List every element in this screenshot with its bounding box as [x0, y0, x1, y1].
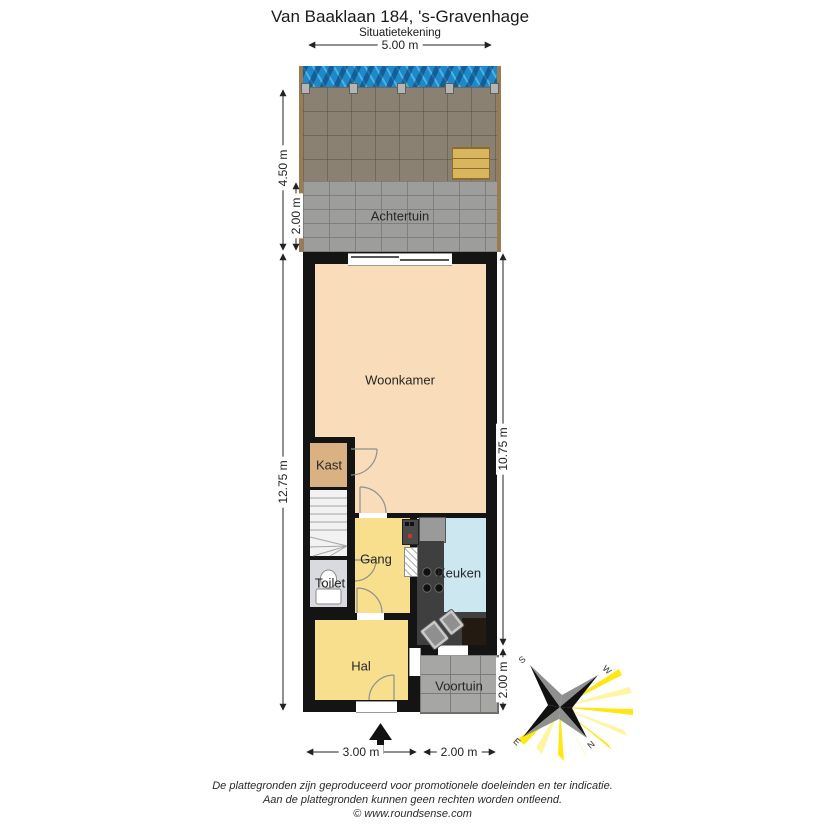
- compass-letters: S W N E: [511, 654, 613, 751]
- heater-unit: [402, 519, 419, 545]
- label-achtertuin: Achtertuin: [371, 209, 430, 224]
- disclaimer-line-2: Aan de plattegronden kunnen geen rechten…: [0, 794, 825, 806]
- opening-gang-hal: [357, 613, 384, 620]
- label-hal: Hal: [351, 659, 371, 674]
- staircase: [310, 490, 347, 556]
- fence-post: [397, 83, 406, 94]
- compass-s: S: [517, 654, 528, 666]
- opening-woonkamer-gang: [359, 513, 387, 518]
- copyright: © www.roundsense.com: [0, 808, 825, 820]
- fence-post: [301, 83, 310, 94]
- compass-e: E: [511, 736, 522, 747]
- compass-star: [523, 665, 598, 738]
- page-title: Van Baaklaan 184, 's-Gravenhage: [0, 7, 800, 27]
- front-door-threshold: [356, 701, 397, 713]
- floorplan-page: Van Baaklaan 184, 's-Gravenhage Situatie…: [0, 0, 825, 825]
- label-voortuin: Voortuin: [435, 679, 483, 694]
- compass-rose-icon: S W N E: [503, 648, 633, 763]
- sun-rays: [518, 669, 633, 761]
- label-toilet: Toilet: [315, 576, 345, 591]
- glass-door-keuken: [404, 547, 418, 577]
- fence-post: [349, 83, 358, 94]
- dim-voortuin-bottom: 2.00 m: [437, 745, 482, 759]
- dim-voortuin-right: 2.00 m: [496, 658, 510, 703]
- hal-window: [409, 648, 421, 676]
- dim-garden-lower: 2.00 m: [289, 194, 303, 239]
- keuken-window: [438, 645, 468, 656]
- fence-post: [445, 83, 454, 94]
- label-keuken: Keuken: [437, 566, 481, 581]
- dim-top-width: 5.00 m: [378, 38, 423, 52]
- compass-w: W: [601, 663, 614, 676]
- disclaimer-line-1: De plattegronden zijn geproduceerd voor …: [0, 780, 825, 792]
- dim-house-left: 12.75 m: [276, 456, 290, 507]
- dim-house-right: 10.75 m: [496, 423, 510, 474]
- kitchen-appliance: [419, 517, 446, 543]
- dim-garden-depth: 4.50 m: [276, 146, 290, 191]
- dim-house-bottom: 3.00 m: [339, 745, 384, 759]
- kitchen-cabinet: [462, 618, 486, 645]
- sliding-door-achtertuin: [348, 253, 452, 266]
- compass-n: N: [585, 739, 596, 751]
- label-gang: Gang: [360, 552, 392, 567]
- fence-post: [490, 83, 499, 94]
- label-woonkamer: Woonkamer: [365, 373, 435, 388]
- garden-storage-box: [452, 147, 490, 180]
- label-kast: Kast: [316, 458, 342, 473]
